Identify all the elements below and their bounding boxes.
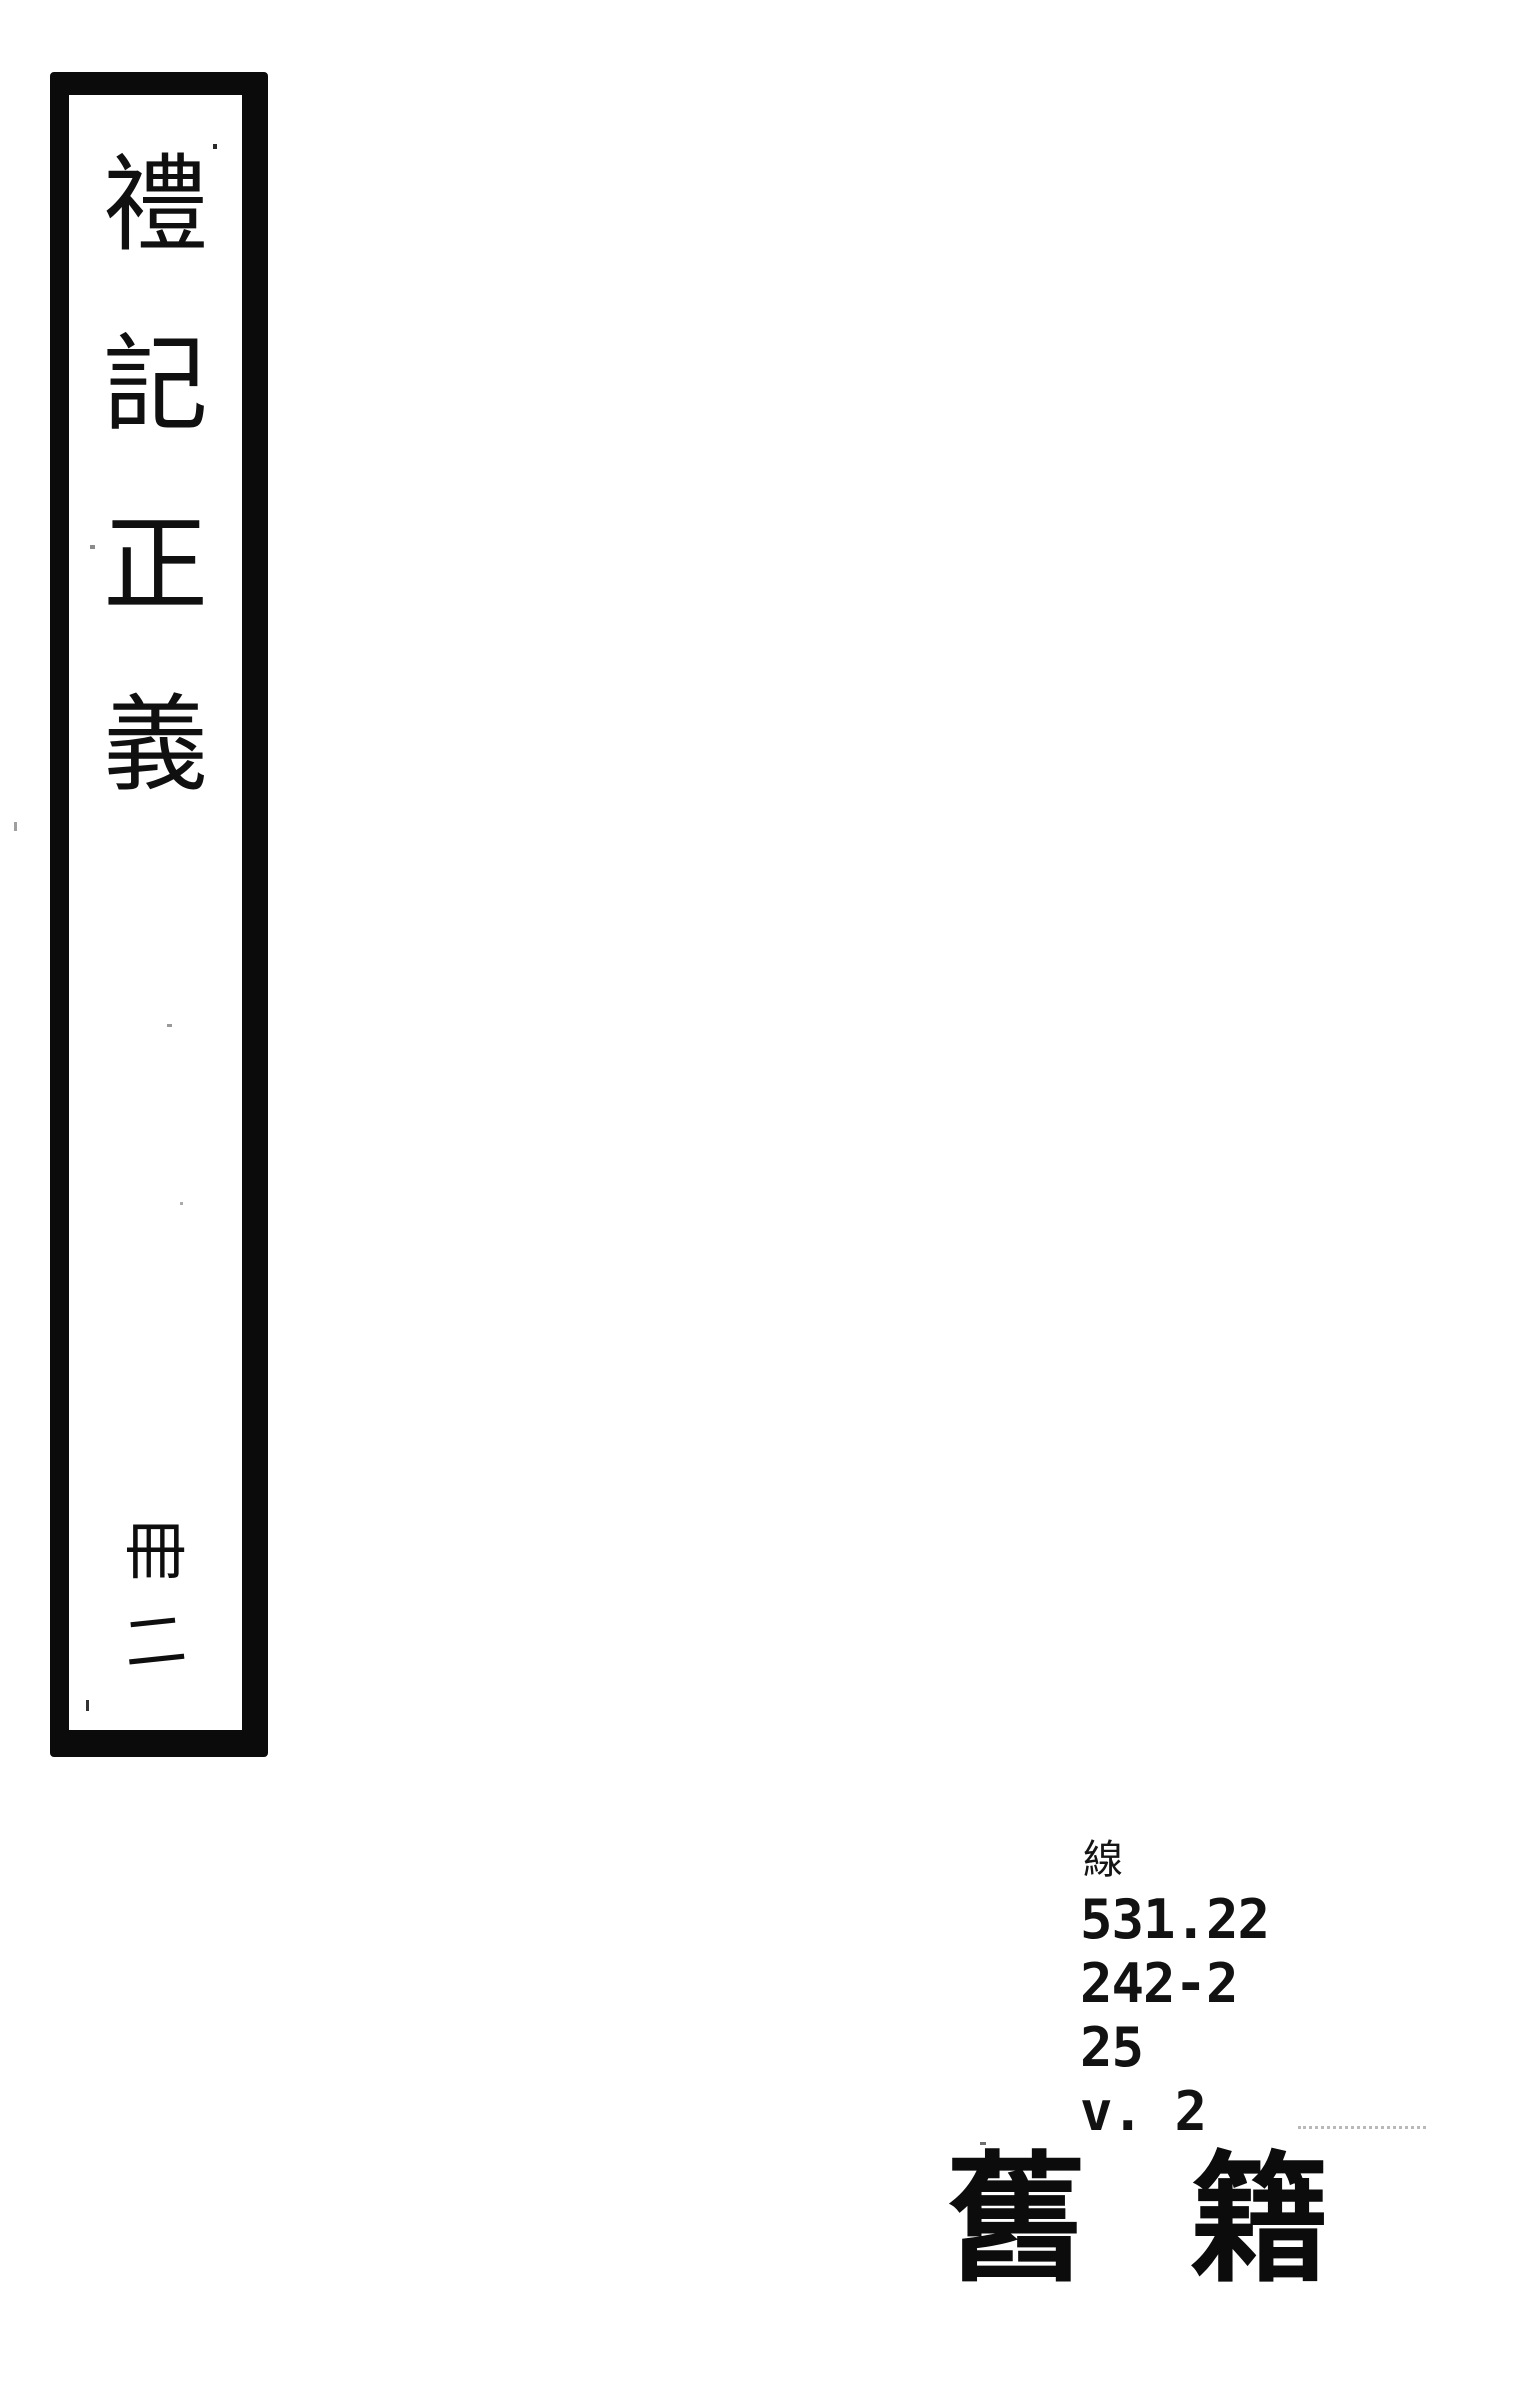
call-number-line: 242-2 [1080,1952,1269,2016]
book-spine-frame: 禮 記 正 義 冊 二 [50,72,268,1757]
collection-char: 籍 [1190,2152,1330,2292]
scanned-book-spine-page: 禮 記 正 義 冊 二 線 531.22 242-2 25 v. 2 舊 籍 [0,0,1525,2391]
title-char: 禮 [103,153,208,258]
volume-char: 二 [121,1609,189,1677]
scan-speck [213,144,217,149]
volume-char: 冊 [124,1522,186,1584]
scan-speck [86,1700,89,1711]
volume-label: 冊 二 [69,1522,242,1674]
call-number-binding-label: 線 [1083,1832,1269,1888]
scan-artifact-dotted-line [1298,2126,1426,2129]
scan-speck [180,1202,183,1205]
call-number-line: 531.22 [1080,1888,1269,1952]
call-number-line: 25 [1080,2016,1269,2080]
scan-speck [14,822,17,831]
collection-char: 舊 [946,2152,1086,2292]
title-char: 義 [103,693,208,798]
library-call-number: 線 531.22 242-2 25 v. 2 [1080,1832,1269,2144]
collection-stamp: 舊 籍 [946,2152,1330,2292]
call-number-line: v. 2 [1080,2080,1269,2144]
book-title-vertical: 禮 記 正 義 [69,153,242,798]
title-char: 正 [103,513,208,618]
scan-speck [980,2142,986,2145]
scan-speck [167,1024,172,1027]
scan-speck [90,545,95,549]
title-char: 記 [103,333,208,438]
